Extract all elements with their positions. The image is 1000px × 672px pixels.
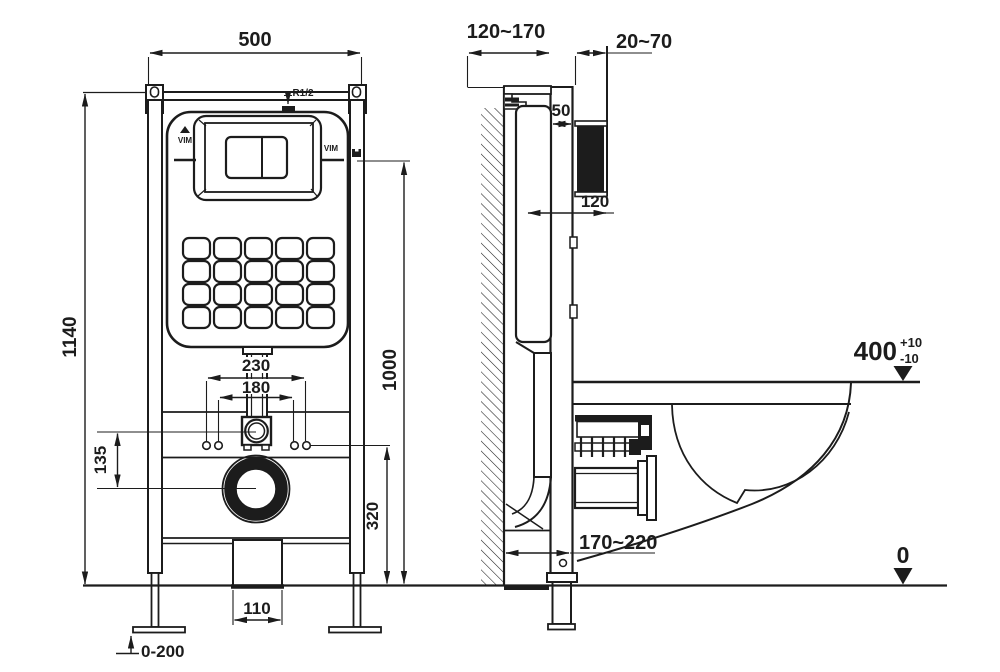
dim-width: 500 xyxy=(149,29,362,84)
dim-depth-range-label: 120~170 xyxy=(467,21,545,43)
floor-level-label: 0 xyxy=(897,542,910,568)
threaded-rod xyxy=(575,437,641,457)
side-frame xyxy=(550,86,577,576)
rim-tol-plus-label: +10 xyxy=(900,335,922,350)
dim-feet-range: 0-200 xyxy=(116,636,184,661)
brand-left-label: VIM xyxy=(178,136,193,145)
outlet-connector xyxy=(575,456,656,520)
wall-hung-frame-drawing: VIM VIM xyxy=(0,0,1000,667)
dim-drain-offset: 170~220 xyxy=(506,532,657,554)
frame-rail-left xyxy=(148,100,162,573)
foot-plate-left xyxy=(133,627,185,633)
bottom-drain-box xyxy=(233,540,282,586)
dim-finish-range: 20~70 xyxy=(576,31,673,85)
dim-drain-width: 110 xyxy=(233,590,282,625)
rim-height-label: 400 xyxy=(854,336,897,366)
side-foot xyxy=(504,560,577,630)
dim-plate-gap-label: 50 xyxy=(552,101,571,120)
frame-top-rail xyxy=(83,85,366,113)
dim-drain-width-label: 110 xyxy=(243,599,270,618)
side-view: 120~170 20~70 50 120 170~220 400 xyxy=(467,21,922,630)
dim-fixing-inner-label: 180 xyxy=(242,378,270,397)
flush-buttons xyxy=(226,137,287,178)
dim-plate-gap: 50 xyxy=(552,101,571,124)
dim-drain-offset-label: 170~220 xyxy=(579,532,657,554)
front-view: VIM VIM xyxy=(60,29,410,661)
level-marker-floor: 0 xyxy=(894,542,913,585)
dim-total-height: 1140 xyxy=(60,94,85,584)
dim-feet-range-label: 0-200 xyxy=(141,642,184,661)
technical-drawing-page: VIM VIM xyxy=(0,0,1000,667)
water-inlet-connector xyxy=(242,417,271,450)
dim-width-label: 500 xyxy=(238,29,271,51)
dim-offset-label: 135 xyxy=(91,446,110,474)
inlet-thread-label: R1/2 xyxy=(292,88,314,99)
side-cistern xyxy=(516,106,551,477)
dim-cistern-depth-label: 120 xyxy=(581,192,609,211)
drain-elbow xyxy=(504,477,551,531)
dim-panel-height-label: 1000 xyxy=(380,349,401,391)
level-marker-rim: 400 +10 -10 xyxy=(854,335,922,381)
inlet-fitting xyxy=(282,106,295,113)
leg-hole xyxy=(560,560,567,567)
dim-finish-range-label: 20~70 xyxy=(616,31,672,53)
dim-outlet-height: 320 xyxy=(363,448,387,584)
level-triangle-icon xyxy=(894,366,913,381)
frame-rail-right xyxy=(350,100,364,573)
foot-plate-right xyxy=(329,627,381,633)
flush-plate-box-section xyxy=(575,46,607,197)
rim-tol-minus-label: -10 xyxy=(900,351,919,366)
wall-hatch xyxy=(481,108,504,585)
dim-outlet-height-label: 320 xyxy=(363,502,382,530)
brand-right-label: VIM xyxy=(324,144,339,153)
flush-plate xyxy=(194,116,321,200)
dim-fixing-outer-label: 230 xyxy=(242,356,270,375)
level-triangle-icon xyxy=(894,568,913,585)
dim-depth-range: 120~170 xyxy=(467,21,549,88)
dim-total-height-label: 1140 xyxy=(60,316,81,357)
